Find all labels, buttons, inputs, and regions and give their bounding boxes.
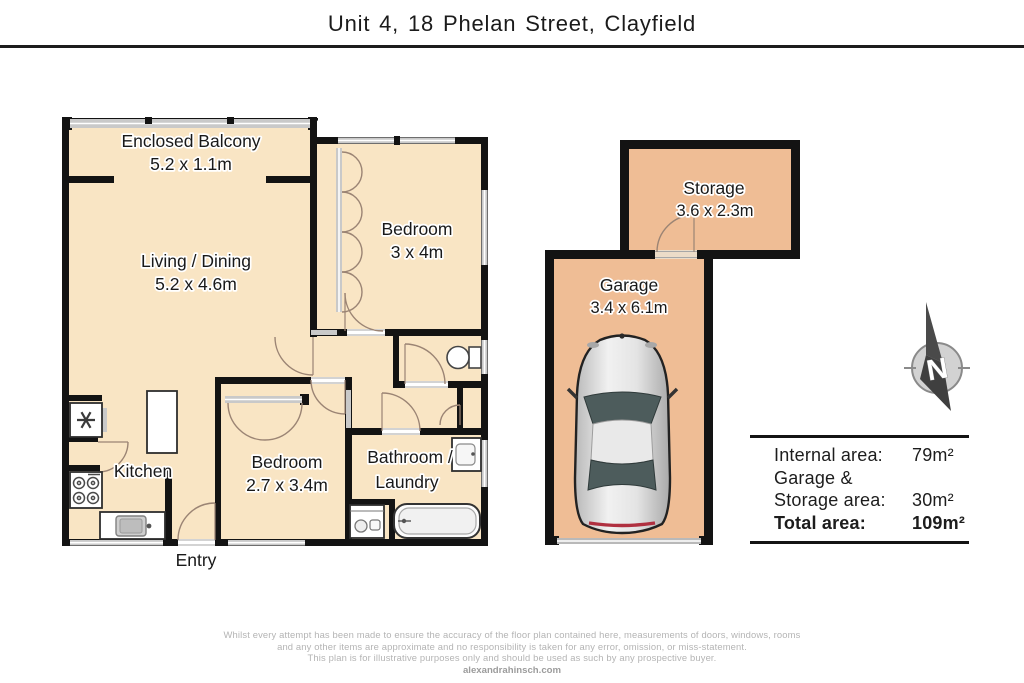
sink-faucet — [147, 524, 152, 529]
vanity-tap — [471, 452, 475, 456]
car-headlight-left — [587, 342, 599, 348]
sink-basin — [120, 519, 142, 533]
car-antenna — [619, 333, 624, 338]
island-bench — [147, 391, 177, 453]
entry-label: Entry — [176, 550, 217, 570]
living-dims: 5.2 x 4.6m — [155, 274, 237, 294]
car-headlight-right — [645, 342, 657, 348]
washer-detail — [370, 520, 380, 530]
total-area-value: 109m² — [912, 512, 969, 535]
storage-name: Storage — [683, 178, 744, 198]
garage-area-label-line2: Storage area: — [774, 489, 912, 512]
disclaimer-line-1: Whilst every attempt has been made to en… — [0, 629, 1024, 641]
website-label: alexandrahinsch.com — [0, 665, 1024, 677]
bedroom1-dims: 3 x 4m — [391, 242, 444, 262]
garage-storage-area-value: 30m² — [912, 489, 969, 512]
garage-area-row-line2: Storage area: 30m² — [750, 489, 969, 512]
hall-sill — [311, 330, 337, 335]
balcony-dims: 5.2 x 1.1m — [150, 154, 232, 174]
north-compass: N — [904, 302, 970, 411]
internal-area-value: 79m² — [912, 444, 969, 467]
garage-area-row-line1: Garage & — [750, 467, 969, 490]
disclaimer-line-3: This plan is for illustrative purposes o… — [0, 652, 1024, 664]
garage-area-label-line1: Garage & — [774, 467, 912, 490]
disclaimer-line-2: and any other items are approximate and … — [0, 641, 1024, 653]
area-summary-table: Internal area: 79m² Garage & Storage are… — [750, 435, 969, 544]
living-name: Living / Dining — [141, 251, 251, 271]
balcony-name: Enclosed Balcony — [121, 131, 260, 151]
total-area-label: Total area: — [774, 512, 912, 535]
floor-storage — [629, 149, 791, 250]
bedroom2-wall-opening — [346, 390, 351, 428]
internal-area-label: Internal area: — [774, 444, 912, 467]
toilet-tank — [469, 347, 481, 368]
disclaimer-footer: Whilst every attempt has been made to en… — [0, 629, 1024, 677]
car-roof — [591, 420, 653, 464]
washer-door — [355, 520, 367, 532]
garage-name: Garage — [600, 275, 658, 295]
storage-dims: 3.6 x 2.3m — [676, 202, 753, 220]
internal-area-row: Internal area: 79m² — [750, 444, 969, 467]
kitchen-name: Kitchen — [114, 461, 172, 481]
toilet-icon — [447, 347, 469, 369]
bathroom-name-line1: Bathroom / — [367, 447, 453, 467]
car-windshield — [584, 392, 661, 424]
car-top-view — [568, 333, 677, 533]
bathroom-name-line2: Laundry — [375, 472, 438, 492]
bedroom2-dims: 2.7 x 3.4m — [246, 475, 328, 495]
floorplan-drawing: N Enclosed Balcony 5.2 x 1.1m Living / D… — [0, 0, 1024, 683]
bedroom1-name: Bedroom — [381, 219, 452, 239]
garage-dims: 3.4 x 6.1m — [590, 299, 667, 317]
bedroom2-name: Bedroom — [251, 452, 322, 472]
total-area-row: Total area: 109m² — [750, 512, 969, 535]
floorplan-page: Unit 4, 18 Phelan Street, Clayfield — [0, 0, 1024, 683]
